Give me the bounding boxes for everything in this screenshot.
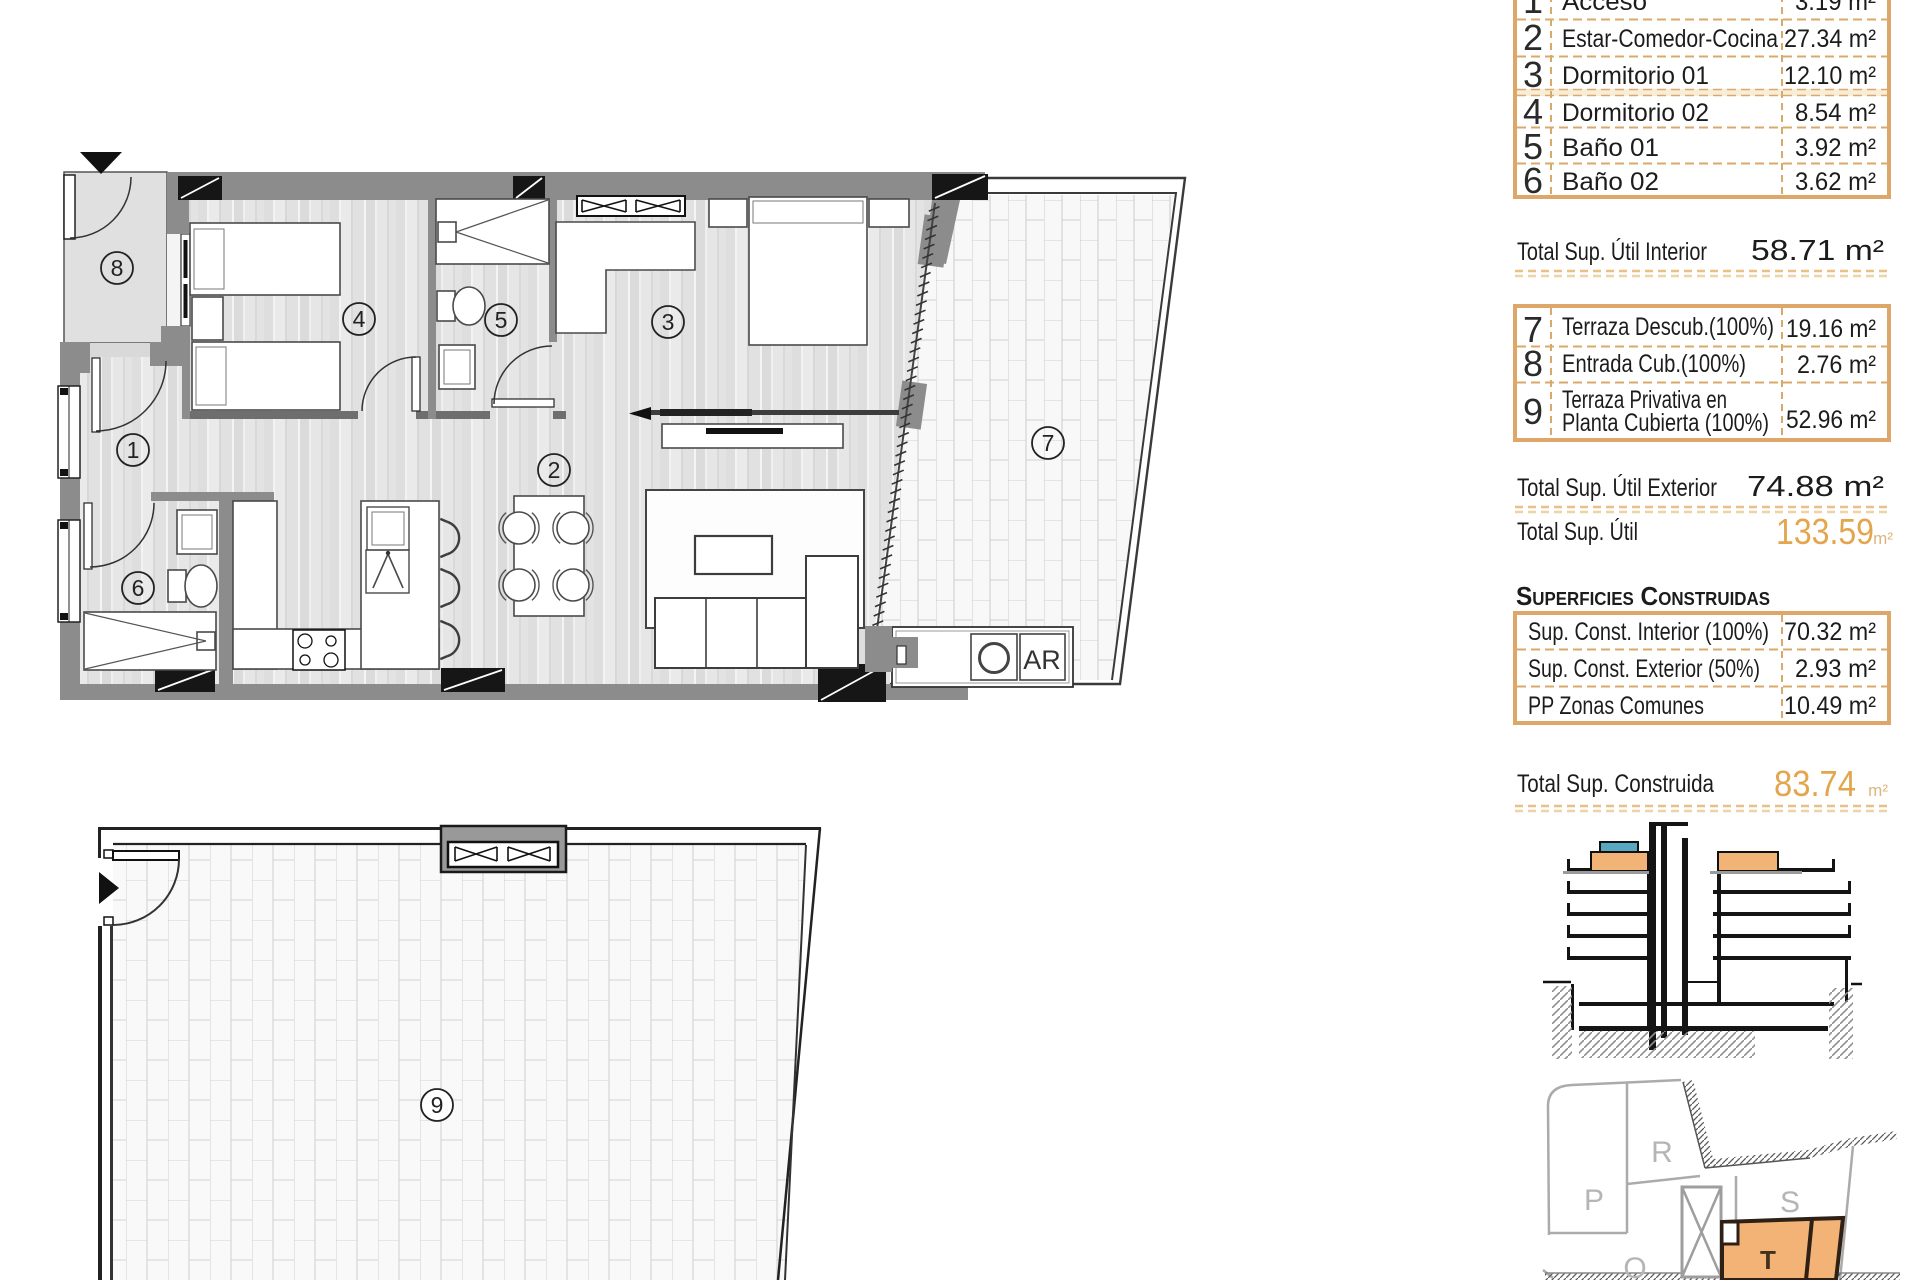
- svg-text:T: T: [1760, 1245, 1776, 1275]
- svg-text:Acceso: Acceso: [1562, 0, 1647, 16]
- svg-text:9: 9: [431, 1092, 444, 1118]
- svg-text:Sup. Const. Interior (100%): Sup. Const. Interior (100%): [1528, 618, 1769, 646]
- svg-text:133.59: 133.59: [1776, 511, 1874, 552]
- svg-text:3.92 m²: 3.92 m²: [1795, 134, 1876, 162]
- svg-text:Entrada Cub.(100%): Entrada Cub.(100%): [1562, 350, 1746, 378]
- svg-text:AR: AR: [1023, 645, 1061, 675]
- svg-text:Estar-Comedor-Cocina: Estar-Comedor-Cocina: [1562, 25, 1778, 53]
- svg-text:2.93 m²: 2.93 m²: [1795, 655, 1876, 683]
- svg-text:8: 8: [111, 255, 124, 281]
- svg-text:Planta Cubierta (100%): Planta Cubierta (100%): [1562, 409, 1769, 437]
- svg-text:58.71 m²: 58.71 m²: [1751, 235, 1884, 267]
- svg-text:O: O: [1623, 1252, 1646, 1280]
- svg-text:Dormitorio 02: Dormitorio 02: [1562, 99, 1709, 127]
- svg-text:Sup. Const. Exterior (50%): Sup. Const. Exterior (50%): [1528, 655, 1760, 683]
- svg-text:Total Sup. Útil: Total Sup. Útil: [1517, 517, 1638, 546]
- svg-text:Baño 02: Baño 02: [1562, 168, 1659, 196]
- svg-text:Superficies Construidas: Superficies Construidas: [1516, 581, 1770, 611]
- svg-text:9: 9: [1523, 391, 1543, 432]
- svg-text:P: P: [1584, 1184, 1604, 1217]
- svg-text:3: 3: [662, 309, 675, 335]
- svg-text:8.54 m²: 8.54 m²: [1795, 99, 1876, 127]
- svg-text:52.96 m²: 52.96 m²: [1786, 406, 1876, 434]
- svg-text:m²: m²: [1873, 529, 1893, 548]
- svg-text:27.34 m²: 27.34 m²: [1784, 25, 1876, 53]
- svg-text:74.88 m²: 74.88 m²: [1747, 471, 1884, 503]
- svg-text:10.49 m²: 10.49 m²: [1784, 692, 1876, 720]
- svg-text:m²: m²: [1868, 781, 1888, 800]
- svg-text:Total Sup. Útil Exterior: Total Sup. Útil Exterior: [1517, 473, 1717, 502]
- svg-text:2: 2: [548, 457, 561, 483]
- svg-text:2: 2: [1523, 17, 1543, 58]
- svg-text:70.32 m²: 70.32 m²: [1784, 618, 1876, 646]
- svg-text:4: 4: [353, 306, 366, 332]
- svg-text:6: 6: [132, 575, 145, 601]
- svg-text:Baño 01: Baño 01: [1562, 134, 1659, 162]
- svg-text:8: 8: [1523, 343, 1543, 384]
- svg-text:Total Sup. Útil Interior: Total Sup. Útil Interior: [1517, 237, 1707, 266]
- svg-text:R: R: [1651, 1136, 1673, 1169]
- svg-text:Dormitorio 01: Dormitorio 01: [1562, 62, 1709, 90]
- svg-text:2.76 m²: 2.76 m²: [1797, 351, 1876, 379]
- svg-text:S: S: [1780, 1186, 1800, 1219]
- svg-text:3.62 m²: 3.62 m²: [1795, 168, 1876, 196]
- svg-text:12.10 m²: 12.10 m²: [1784, 62, 1876, 90]
- svg-text:3: 3: [1523, 54, 1543, 95]
- svg-text:3.19 m²: 3.19 m²: [1795, 0, 1876, 16]
- svg-text:19.16 m²: 19.16 m²: [1786, 315, 1876, 343]
- svg-text:PP Zonas Comunes: PP Zonas Comunes: [1528, 692, 1704, 720]
- svg-text:Total Sup. Construida: Total Sup. Construida: [1517, 770, 1714, 798]
- svg-text:Terraza Descub.(100%): Terraza Descub.(100%): [1562, 313, 1774, 341]
- svg-text:6: 6: [1523, 160, 1543, 201]
- svg-text:7: 7: [1042, 430, 1055, 456]
- svg-text:5: 5: [495, 307, 508, 333]
- svg-text:83.74: 83.74: [1774, 763, 1856, 804]
- svg-text:1: 1: [127, 437, 140, 463]
